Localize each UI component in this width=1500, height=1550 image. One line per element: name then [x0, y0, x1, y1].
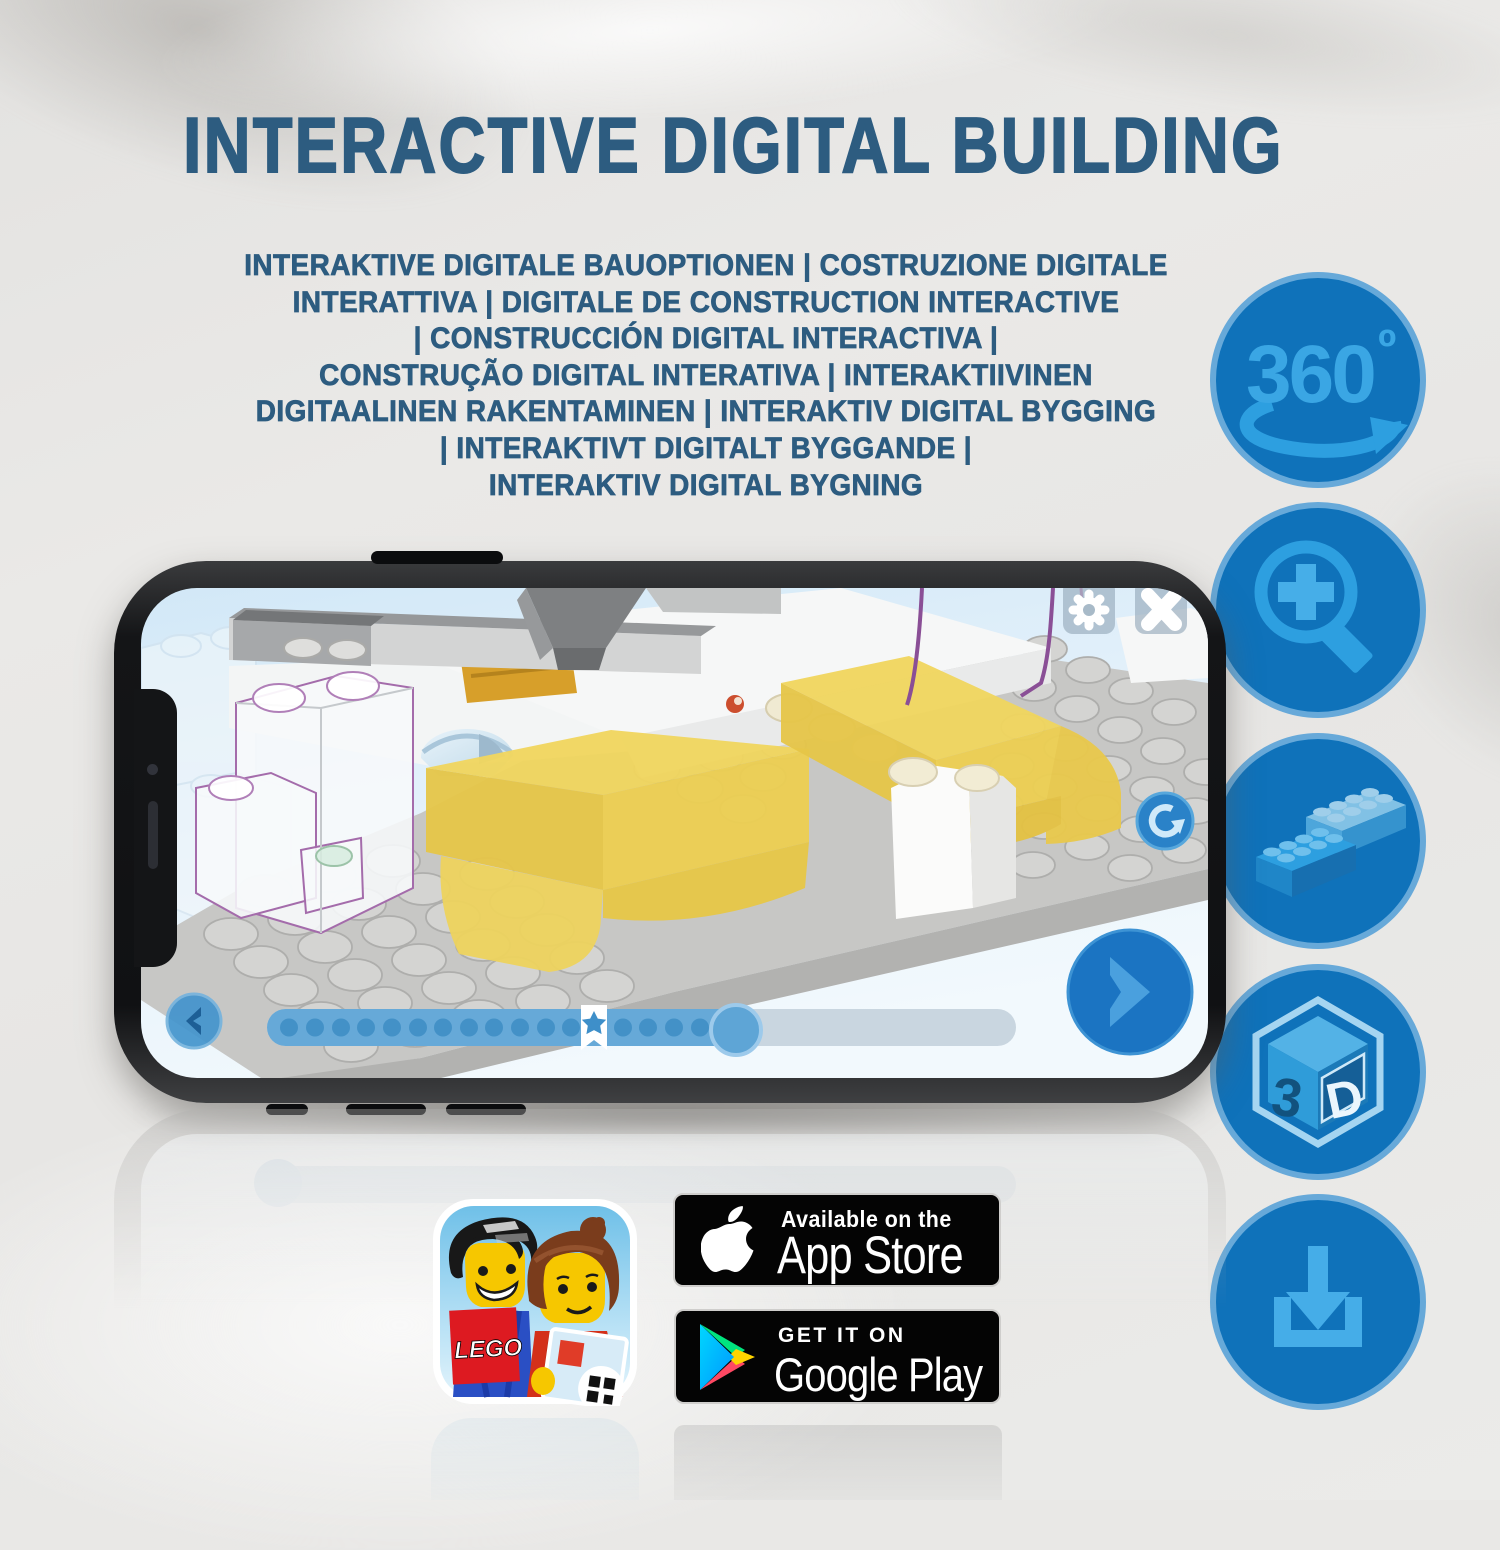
svg-text:360: 360: [1246, 329, 1374, 420]
svg-text:LEGO: LEGO: [454, 1334, 524, 1365]
svg-text:º: º: [1378, 319, 1396, 375]
